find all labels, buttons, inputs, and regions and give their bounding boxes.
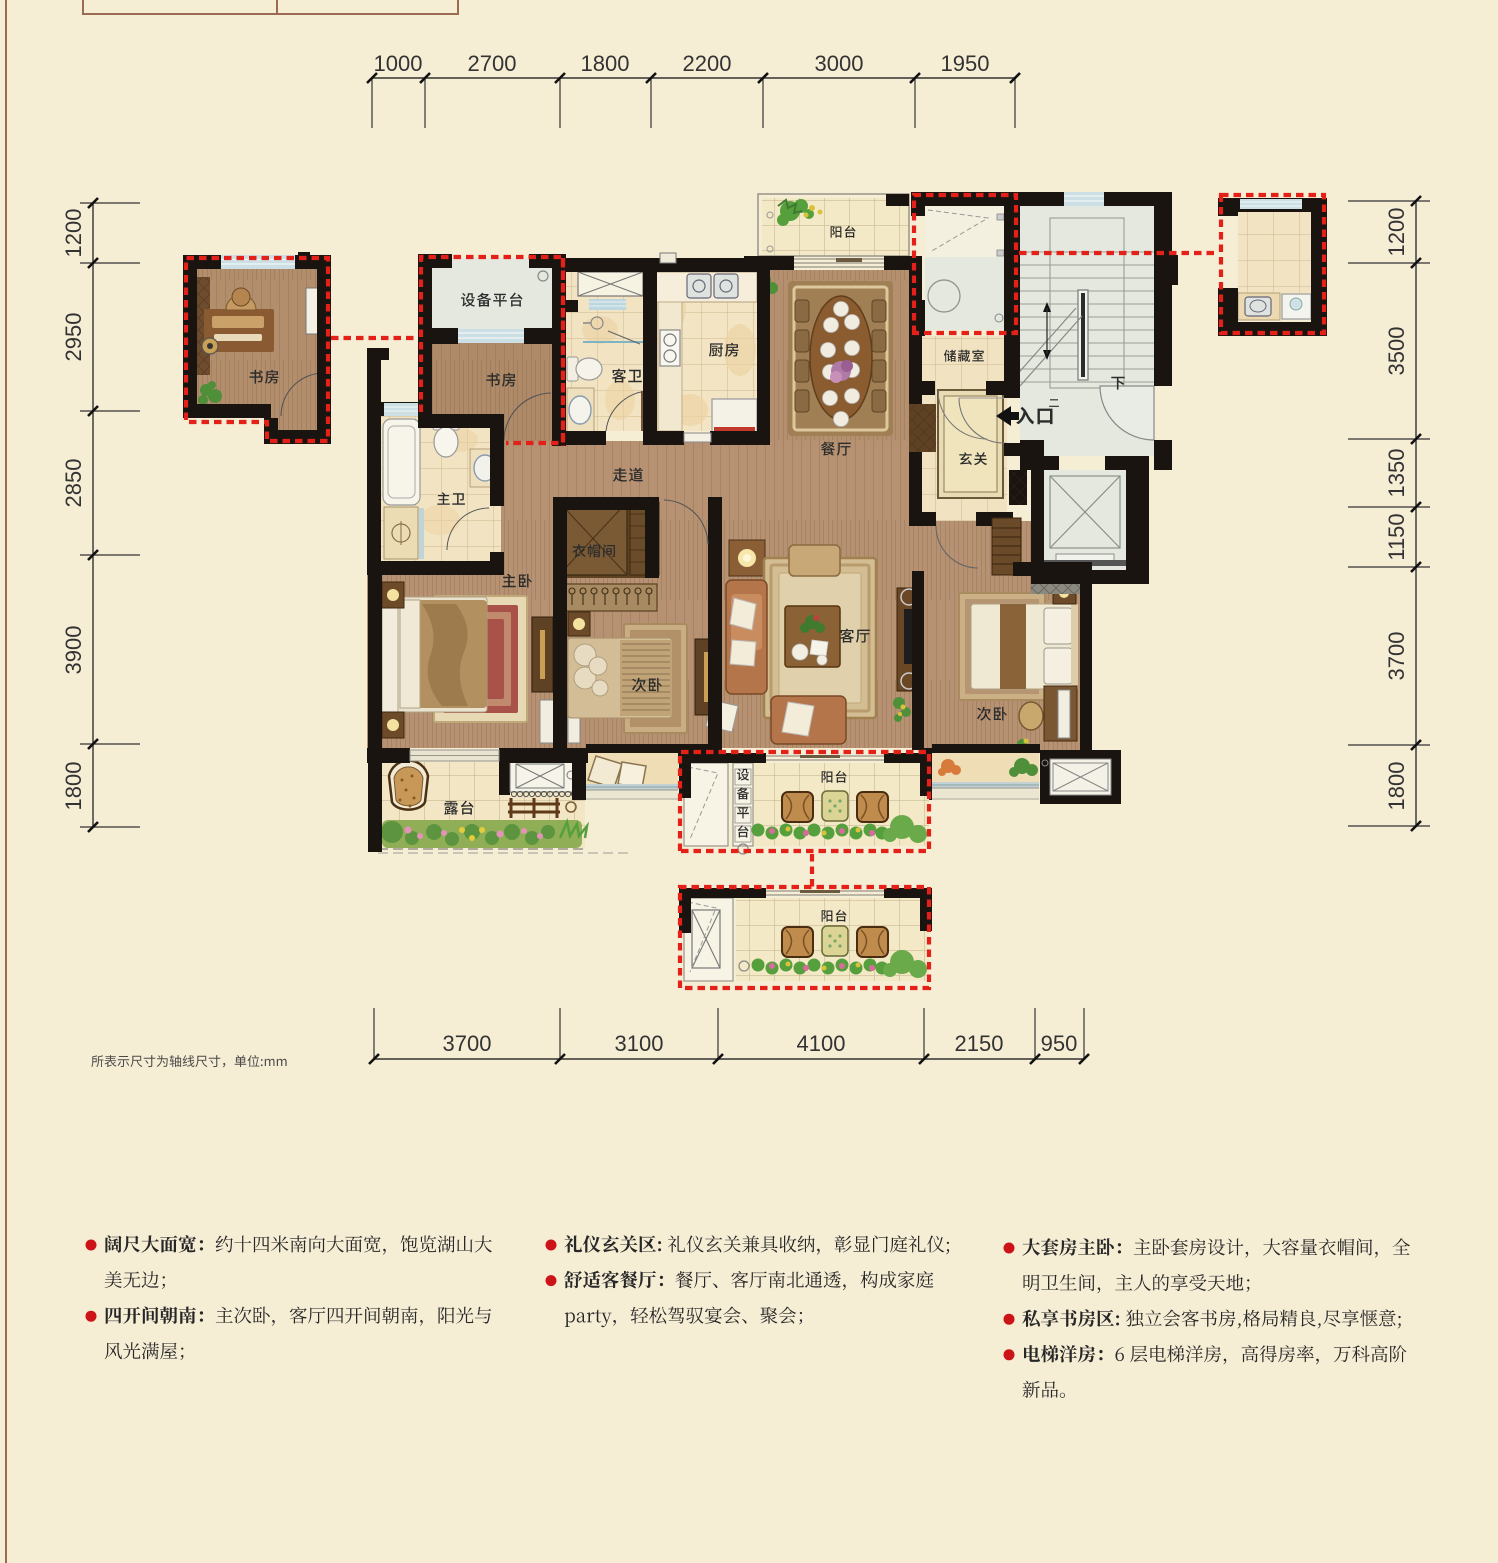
svg-text:3700: 3700 xyxy=(443,1031,492,1056)
svg-text:1800: 1800 xyxy=(1384,762,1409,811)
svg-text:950: 950 xyxy=(1041,1031,1078,1056)
svg-text:2850: 2850 xyxy=(61,459,86,508)
svg-text:1000: 1000 xyxy=(374,51,423,76)
svg-text:3500: 3500 xyxy=(1384,327,1409,376)
svg-text:2950: 2950 xyxy=(61,313,86,362)
svg-text:3900: 3900 xyxy=(61,626,86,675)
svg-text:3100: 3100 xyxy=(615,1031,664,1056)
svg-text:1800: 1800 xyxy=(581,51,630,76)
svg-text:1150: 1150 xyxy=(1384,513,1409,560)
svg-text:3000: 3000 xyxy=(815,51,864,76)
svg-text:2150: 2150 xyxy=(955,1031,1004,1056)
svg-text:1350: 1350 xyxy=(1384,449,1409,498)
svg-text:2200: 2200 xyxy=(683,51,732,76)
svg-text:3700: 3700 xyxy=(1384,632,1409,681)
svg-text:1950: 1950 xyxy=(941,51,990,76)
svg-text:4100: 4100 xyxy=(797,1031,846,1056)
svg-text:2700: 2700 xyxy=(468,51,517,76)
svg-text:1800: 1800 xyxy=(61,762,86,811)
svg-text:1200: 1200 xyxy=(1384,208,1409,257)
svg-text:1200: 1200 xyxy=(61,209,86,258)
